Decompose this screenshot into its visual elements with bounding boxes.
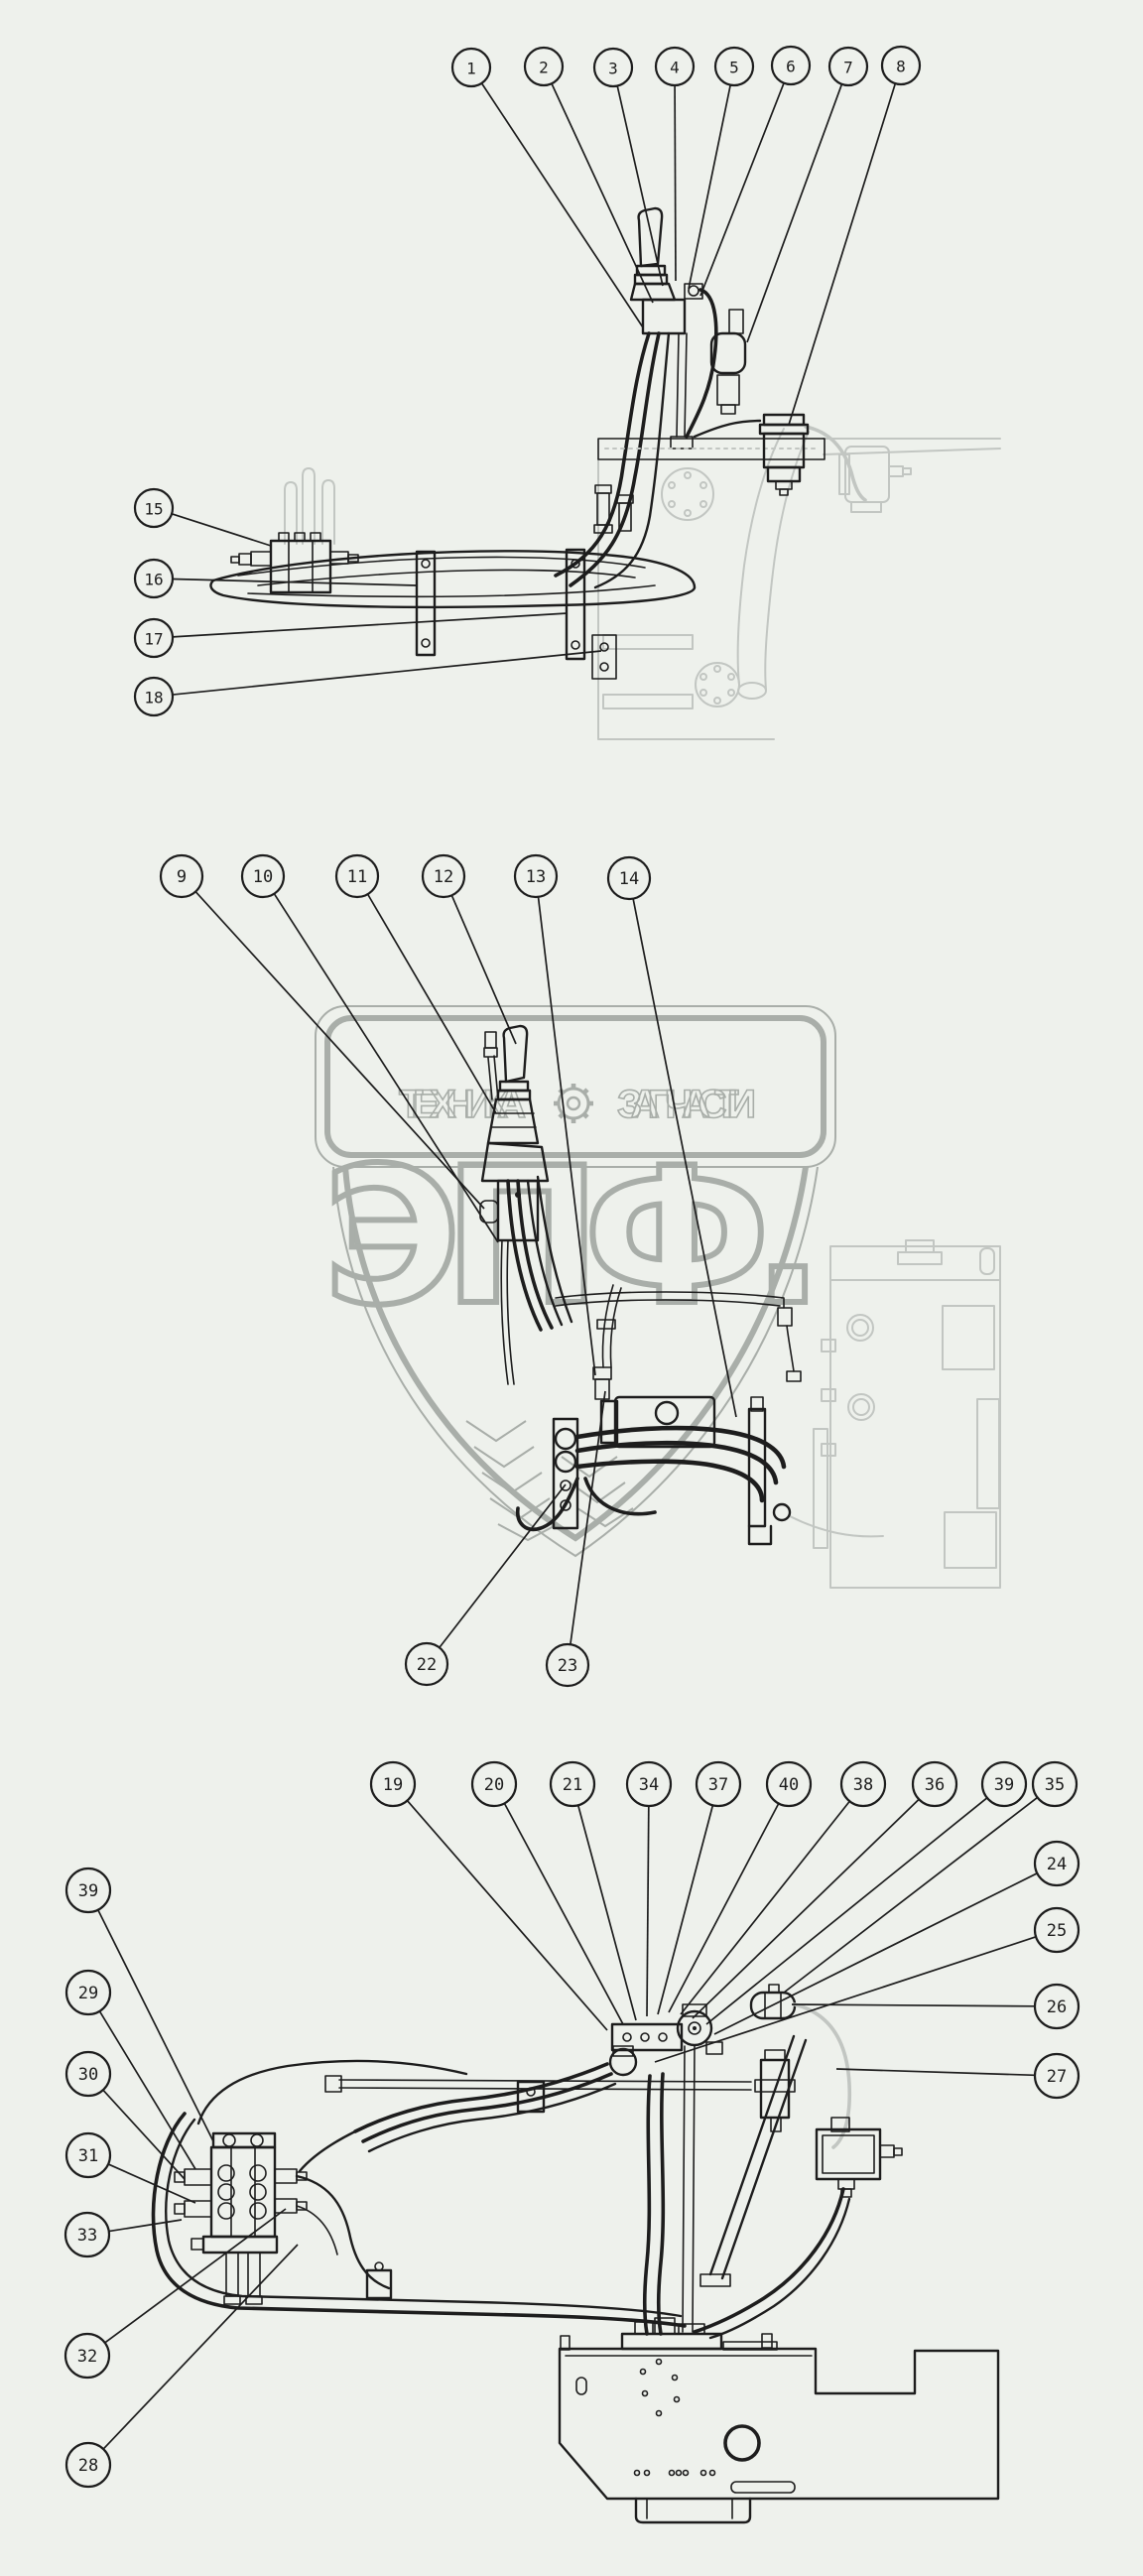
leader-line-1 <box>481 83 643 327</box>
top-diagram-artwork <box>210 208 825 679</box>
callout-label-20: 20 <box>484 1775 504 1795</box>
callout-label-5: 5 <box>729 59 739 77</box>
leader-line-24 <box>714 1873 1037 2034</box>
leader-line-34 <box>647 1806 649 2016</box>
leader-line-7 <box>747 84 841 342</box>
watermark-big-text: ЭПФ. <box>323 1127 825 1347</box>
callout-label-6: 6 <box>786 58 796 76</box>
callout-label-27: 27 <box>1047 2067 1067 2087</box>
return-hose <box>795 2004 849 2147</box>
top-diagram-ghost-chassis <box>285 427 1000 739</box>
pump-cluster <box>610 2004 722 2075</box>
leader-line-20 <box>504 1803 623 2024</box>
callout-label-3: 3 <box>608 60 618 78</box>
callout-label-13: 13 <box>526 867 546 887</box>
leader-line-35 <box>784 1797 1038 1993</box>
top-assembly-view-callouts: 1234567815161718 <box>135 47 920 715</box>
callout-label-36: 36 <box>925 1775 945 1795</box>
leader-line-22 <box>440 1484 566 1647</box>
leader-line-18 <box>173 651 601 695</box>
callout-label-15: 15 <box>144 500 163 519</box>
callout-label-7: 7 <box>843 59 853 77</box>
bracket-plate <box>554 1419 577 1528</box>
leader-line-15 <box>172 514 271 546</box>
callout-label-37: 37 <box>708 1775 728 1795</box>
leader-line-33 <box>109 2220 182 2232</box>
callout-label-21: 21 <box>563 1775 582 1795</box>
callout-label-32: 32 <box>77 2347 97 2367</box>
callout-label-23: 23 <box>558 1656 577 1676</box>
callout-label-25: 25 <box>1047 1921 1067 1941</box>
watermark-shield: ТЕХНИКА ЗАПЧАСТИ ЭПФ. <box>316 1006 835 1556</box>
callout-label-38: 38 <box>853 1775 873 1795</box>
callout-label-2: 2 <box>539 59 549 77</box>
callout-label-28: 28 <box>78 2456 98 2476</box>
leader-line-19 <box>407 1801 607 2030</box>
leader-line-5 <box>689 85 730 289</box>
callout-label-8: 8 <box>896 58 906 76</box>
callout-label-4: 4 <box>670 59 680 77</box>
callout-label-17: 17 <box>144 630 163 649</box>
callout-label-10: 10 <box>253 867 273 887</box>
leader-line-6 <box>700 83 784 296</box>
leader-line-12 <box>451 895 516 1044</box>
callout-label-31: 31 <box>78 2146 98 2166</box>
callout-label-18: 18 <box>144 689 163 708</box>
callout-label-39: 39 <box>994 1775 1014 1795</box>
leader-line-17 <box>173 613 568 637</box>
callout-label-39: 39 <box>78 1881 98 1901</box>
leader-line-26 <box>792 2004 1035 2006</box>
tie-rod <box>325 2076 751 2092</box>
callout-label-26: 26 <box>1047 1997 1067 2017</box>
feed-hoses <box>198 2061 615 2171</box>
callout-label-24: 24 <box>1047 1855 1067 1874</box>
callout-label-12: 12 <box>434 867 453 887</box>
callout-label-35: 35 <box>1045 1775 1065 1795</box>
callout-label-11: 11 <box>347 867 367 887</box>
callout-label-19: 19 <box>383 1775 403 1795</box>
callout-label-40: 40 <box>779 1775 799 1795</box>
callout-label-33: 33 <box>77 2226 97 2246</box>
leader-line-36 <box>693 1799 919 2018</box>
callout-label-1: 1 <box>466 60 476 78</box>
strap-bracket <box>417 552 435 655</box>
leader-line-8 <box>789 83 895 425</box>
gear-icon <box>554 1084 593 1123</box>
callout-label-9: 9 <box>177 867 187 887</box>
hydraulic-tank <box>560 2318 998 2522</box>
leader-line-21 <box>578 1805 636 2020</box>
bottom-diagram-artwork <box>153 1985 998 2522</box>
leader-line-16 <box>173 580 417 585</box>
callout-label-14: 14 <box>619 869 639 889</box>
leader-line-32 <box>105 2209 286 2343</box>
manifold-block <box>175 2133 307 2304</box>
control-box <box>817 2118 902 2197</box>
parts-catalog-page: ТЕХНИКА ЗАПЧАСТИ ЭПФ. <box>0 0 1143 2576</box>
hose-bundle <box>210 551 695 607</box>
leader-line-27 <box>836 2069 1035 2075</box>
leader-line-31 <box>108 2164 195 2203</box>
watermark-word-right: ЗАПЧАСТИ <box>617 1083 760 1126</box>
leader-line-2 <box>552 83 653 303</box>
callout-label-16: 16 <box>144 571 163 589</box>
leader-line-11 <box>368 894 496 1113</box>
leader-line-28 <box>103 2245 298 2449</box>
parts-diagram-canvas: ТЕХНИКА ЗАПЧАСТИ ЭПФ. <box>0 0 1143 2576</box>
callout-label-34: 34 <box>639 1775 659 1795</box>
leader-line-4 <box>675 85 676 281</box>
bottom-assembly-view-callouts: 1920213437403836393524252627392930313332… <box>65 1762 1079 2487</box>
leader-line-29 <box>99 2011 195 2169</box>
leader-line-39 <box>706 1798 987 2024</box>
callout-label-22: 22 <box>417 1655 437 1675</box>
callout-label-29: 29 <box>78 1984 98 2003</box>
leader-line-39 <box>98 1910 213 2141</box>
callout-label-30: 30 <box>78 2065 98 2085</box>
